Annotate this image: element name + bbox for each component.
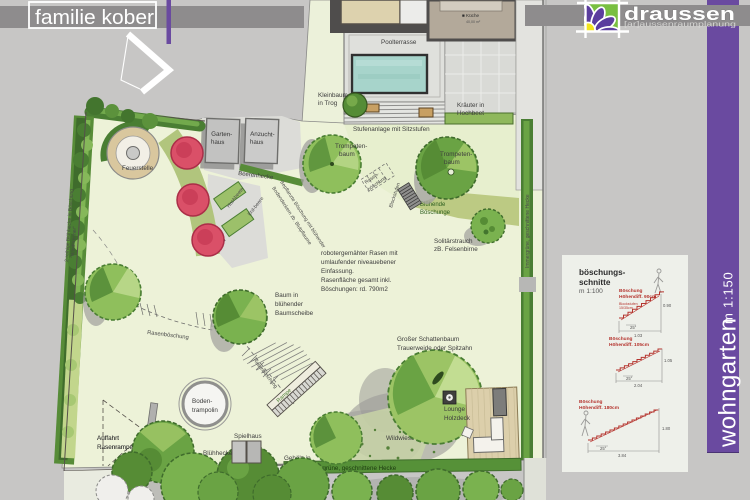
svg-text:baum: baum [339, 151, 355, 158]
svg-text:Kleinbaum: Kleinbaum [318, 92, 348, 99]
svg-text:Stufenanlage mit Sitzstufen: Stufenanlage mit Sitzstufen [353, 126, 430, 133]
svg-text:Hochbeet: Hochbeet [457, 110, 484, 117]
svg-text:m 1:100: m 1:100 [579, 288, 603, 295]
svg-text:Höhendiff. 105cm: Höhendiff. 105cm [609, 342, 649, 348]
svg-text:Böschung: Böschung [619, 288, 643, 294]
svg-text:[ar]aussenraumplanung: [ar]aussenraumplanung [624, 20, 736, 29]
svg-text:Solitärstrauch: Solitärstrauch [434, 238, 473, 245]
svg-text:Trauerweide oder Spitzahn: Trauerweide oder Spitzahn [397, 345, 473, 352]
svg-text:Baumscheibe: Baumscheibe [275, 310, 314, 317]
svg-text:haus: haus [211, 139, 225, 146]
svg-text:Einfassung.: Einfassung. [321, 268, 354, 275]
svg-text:schnitte: schnitte [579, 278, 611, 287]
svg-text:1.80: 1.80 [662, 426, 671, 431]
svg-text:15/35cm: 15/35cm [619, 306, 633, 310]
svg-text:0.90: 0.90 [663, 303, 672, 308]
svg-text:25°: 25° [630, 325, 637, 330]
svg-text:Böschunge: Böschunge [420, 210, 451, 216]
svg-text:familie kober: familie kober [35, 6, 154, 29]
svg-text:m 1:150: m 1:150 [721, 271, 736, 324]
svg-text:trampolin: trampolin [192, 407, 218, 414]
svg-text:baum: baum [444, 159, 460, 166]
svg-text:Trompeten-: Trompeten- [440, 151, 472, 158]
svg-text:Böschung: Böschung [579, 399, 603, 405]
svg-text:Anzucht-: Anzucht- [250, 131, 275, 139]
svg-text:■ Küche: ■ Küche [462, 13, 480, 18]
svg-text:zB. Felsenbirne: zB. Felsenbirne [434, 246, 478, 253]
svg-text:Spielhaus: Spielhaus [234, 433, 262, 440]
svg-text:Baum in: Baum in [275, 292, 299, 299]
svg-text:Großer Schattenbaum: Großer Schattenbaum [397, 336, 459, 343]
svg-text:in Trog: in Trog [318, 100, 338, 107]
svg-text:Trompeten-: Trompeten- [335, 143, 367, 150]
svg-text:Kräuter in: Kräuter in [457, 102, 485, 109]
svg-text:Böschung: Böschung [609, 336, 633, 342]
svg-text:Poolterrasse: Poolterrasse [381, 39, 417, 46]
svg-text:Immergrüne, geschnittene Hecke: Immergrüne, geschnittene Hecke [525, 194, 531, 268]
svg-text:robotergemähter Rasen mit: robotergemähter Rasen mit [321, 250, 398, 257]
svg-text:blühender: blühender [275, 301, 303, 308]
svg-text:25°: 25° [600, 446, 607, 451]
svg-text:40,00 m²: 40,00 m² [466, 20, 481, 24]
svg-text:Rasenfläche gesamt inkl.: Rasenfläche gesamt inkl. [321, 277, 392, 284]
svg-text:Auffahrt: Auffahrt [97, 435, 119, 442]
svg-text:1.05: 1.05 [664, 358, 673, 363]
svg-text:Garten-: Garten- [211, 131, 232, 139]
svg-text:haus: haus [250, 139, 264, 146]
svg-text:Blühhecke: Blühhecke [203, 450, 233, 457]
svg-text:Rasenrampe: Rasenrampe [97, 444, 134, 451]
svg-text:2.04: 2.04 [634, 383, 643, 388]
svg-text:umlaufender niveauebener: umlaufender niveauebener [321, 259, 396, 266]
svg-text:3.84: 3.84 [618, 453, 627, 458]
svg-text:Böschungen: rd. 790m2: Böschungen: rd. 790m2 [321, 286, 388, 293]
svg-text:Feuerstelle: Feuerstelle [122, 165, 154, 172]
svg-text:wohngarten: wohngarten [715, 318, 742, 448]
svg-text:1.03: 1.03 [634, 333, 643, 338]
svg-text:25°: 25° [626, 376, 633, 381]
svg-text:Holzdeck: Holzdeck [444, 415, 471, 422]
svg-text:Höhendiff. 180cm: Höhendiff. 180cm [579, 405, 619, 411]
svg-text:Lounge: Lounge [444, 406, 466, 413]
svg-text:Boden-: Boden- [192, 398, 212, 405]
svg-text:böschungs-: böschungs- [579, 268, 626, 277]
